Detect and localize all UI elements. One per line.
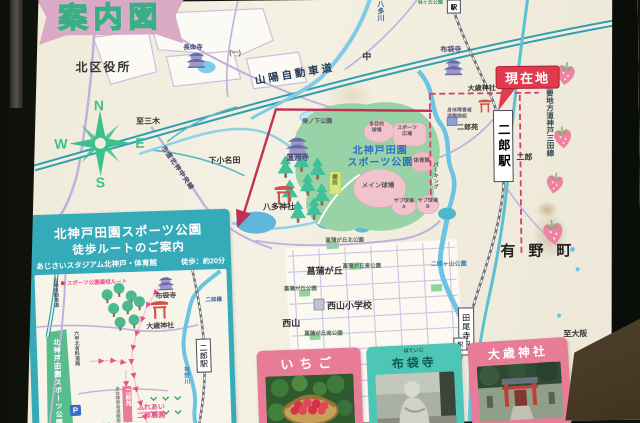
label-hayashi-park: 林ヶ丘公園 <box>418 1 443 7</box>
label-nishiyama: 西山 <box>282 318 300 329</box>
panel-label-fureai-farm: ふれあい 二郎農園 <box>137 404 166 421</box>
compass-n: N <box>94 97 104 113</box>
label-sub-ground-a: サブ球場 A <box>394 199 414 211</box>
label-route-number: (一) <box>229 50 241 58</box>
label-renshoji: 蓮照寺 <box>286 154 309 163</box>
label-care-facility: 身体障害者 通園施設 <box>447 108 472 120</box>
panel-subtitle: あじさいスタジアム北神戸・体育館 <box>36 257 157 272</box>
label-shobugaoka-north-park: 菖蒲が丘北公園 <box>325 238 364 245</box>
compass-e: E <box>135 135 145 151</box>
label-naka: 中 <box>362 51 371 61</box>
label-shobugaoka-park: 菖蒲が丘公園 <box>284 286 317 293</box>
panel-label-sanyo: 山陽自動車道 <box>52 277 59 307</box>
panel-label-jirobashi: 二郎橋 <box>205 297 222 304</box>
strawberry-photo <box>265 374 355 423</box>
panel-parking-chip: P <box>70 405 81 416</box>
pole-in-foreground <box>10 0 23 108</box>
label-multi-ground: 多目的 球場 <box>369 122 384 134</box>
label-shobugaoka-east-park: 菖蒲が丘東公園 <box>343 263 382 270</box>
label-hata-river: 八多川 <box>376 0 384 21</box>
photo-of-signboard: 案内図 北区役所 長命寺 (一) 山陽自動車道 中 八多川 林ヶ丘公園 駅 布袋… <box>0 0 640 423</box>
photo-panel-strawberry-title: いちご <box>257 351 362 374</box>
label-shobugaoka-south-park: 菖蒲が丘南公園 <box>304 331 343 338</box>
label-jiroen: 二郎苑 <box>457 124 478 132</box>
niro-station-box: 二郎駅 <box>493 110 514 182</box>
panel-label-jiroen-chip: 二郎苑 <box>123 388 130 406</box>
compass-w: W <box>54 136 67 152</box>
panel-walk-time: 徒歩：約20分 <box>181 255 225 266</box>
label-hoteiji-map: 布袋寺 <box>440 47 461 55</box>
label-gymnasium: 体育館 <box>413 158 430 164</box>
walking-route-panel: 北神戸田園スポーツ公園 徒歩ルートのご案内 あじさいスタジアム北神戸・体育館 徒… <box>25 209 236 423</box>
photo-panel-hoteiji-title: 布袋寺 <box>366 352 462 373</box>
label-to-osaka: 至大阪 <box>563 329 587 338</box>
label-ward-office: 北区役所 <box>75 61 131 75</box>
label-tanada: 棚田 <box>331 174 337 185</box>
label-parking: パーキング <box>431 162 438 190</box>
panel-label-arino-river: 有野川 <box>182 366 189 384</box>
label-kobe-sanda-line: 主要地方道神戸三田線 <box>545 82 554 157</box>
label-shimo-onada: 下小名田 <box>208 156 240 166</box>
panel-label-otoshi: 大歳神社 <box>146 323 174 332</box>
label-chomeiji: 長命寺 <box>183 44 203 52</box>
label-main-ground: メイン球場 <box>362 182 395 190</box>
hoteiji-photo <box>375 371 456 423</box>
torii-otoshi-icon <box>479 99 492 112</box>
photo-panel-otoshi-title: 大歳神社 <box>467 341 568 364</box>
page-title: 案内図 <box>36 0 186 37</box>
panel-label-rokko-toll-road: 六甲北有料道路 <box>72 331 79 366</box>
label-nishiyama-elementary: 西山小学校 <box>327 300 372 311</box>
station-chip-top: 駅 <box>447 0 461 14</box>
label-to-miki: 至三木 <box>136 117 160 126</box>
label-sports-plaza: スポーツ 広場 <box>397 126 417 138</box>
label-park-name: 北神戸田園 スポーツ公園 <box>347 145 413 169</box>
route-map-card: スポーツ公園最短ルート 山陽自動車道 六甲北有料道路 北神戸田園スポーツ公園 布… <box>34 269 231 423</box>
label-otoshi-map: 大歳神社 <box>468 85 496 93</box>
label-shobugaoka: 菖蒲が丘 <box>307 266 343 277</box>
panel-niro-station-box: 二郎駅 <box>196 338 212 372</box>
label-hata-shrine: 八多神社 <box>263 202 295 212</box>
otoshi-shrine-photo <box>477 361 564 422</box>
label-konoshita-park: 庚ノ下公園 <box>302 119 332 126</box>
current-location-badge: 現在地 <box>495 65 559 89</box>
temple-hoteiji-icon <box>443 60 463 75</box>
label-jirogayama-park: 二郎ヶ山公園 <box>431 261 467 268</box>
legend-dot-icon <box>61 281 65 285</box>
school-building-icon <box>314 299 324 310</box>
compass-s: S <box>96 174 106 190</box>
photo-panel-hoteiji: ほていじ 布袋寺 <box>366 343 465 423</box>
label-jiro-area: 二郎 <box>516 153 532 162</box>
photo-panel-otoshi: 大歳神社 <box>467 337 572 423</box>
label-arino-cho: 有野町 <box>500 242 584 260</box>
label-sub-ground-b: サブ球場 B <box>418 199 438 211</box>
photo-panel-strawberry: いちご <box>256 347 363 423</box>
panel-label-hoteiji: 布袋寺 <box>155 292 176 301</box>
signboard: 案内図 北区役所 長命寺 (一) 山陽自動車道 中 八多川 林ヶ丘公園 駅 布袋… <box>0 0 640 423</box>
